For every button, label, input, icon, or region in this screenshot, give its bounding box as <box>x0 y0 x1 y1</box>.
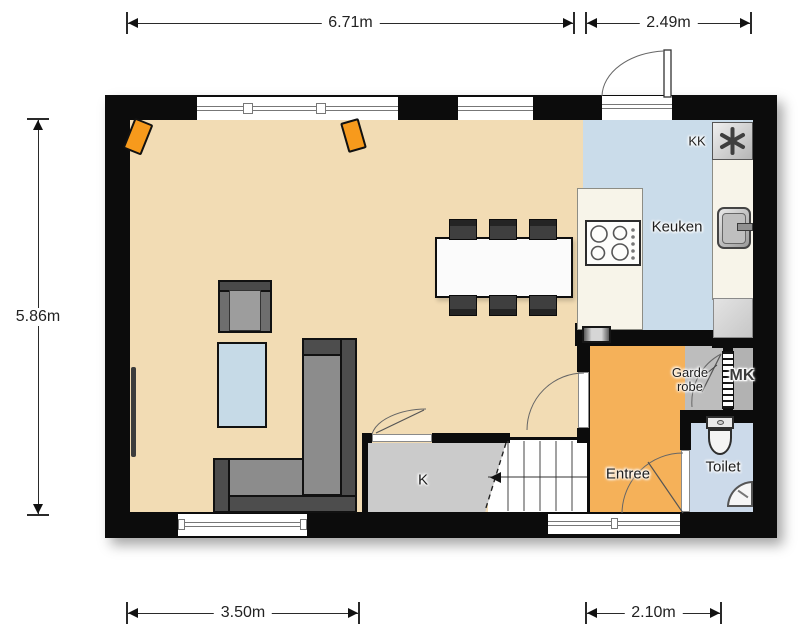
toilet-tank <box>706 416 734 429</box>
dimension-tick <box>750 12 752 34</box>
window-mullion <box>243 103 253 114</box>
boiler-asterisk-icon <box>713 123 752 159</box>
interior-wall-kitchen-south <box>712 340 753 348</box>
arrow-right-icon <box>740 18 750 28</box>
dimension-tick <box>27 514 49 516</box>
tv-unit <box>131 367 136 457</box>
door-living-entree <box>578 372 589 428</box>
arrow-right-icon <box>348 608 358 618</box>
room-label-meterkast: MK <box>730 367 755 385</box>
window-mullion <box>316 103 326 114</box>
dining-chair <box>529 219 557 240</box>
dining-chair <box>489 219 517 240</box>
toilet-flush-button <box>717 420 724 425</box>
under-stairs-closet <box>368 443 506 512</box>
dimension-value: 2.49m <box>639 14 697 32</box>
arrow-up-icon <box>33 120 43 130</box>
dimension-value: 5.86m <box>9 308 67 326</box>
door-threshold <box>602 104 672 109</box>
boiler-unit <box>712 122 753 160</box>
sofa-seat-horizontal <box>228 458 304 497</box>
interior-wall-closet-west <box>362 443 368 512</box>
window-mullion <box>178 519 185 530</box>
interior-wall-closet-north <box>362 433 372 443</box>
dimension-bottom-entree: 2.10m <box>585 602 722 624</box>
room-label-entree: Entree <box>606 466 650 483</box>
dining-chair <box>449 295 477 316</box>
dimension-left-height: 5.86m <box>27 118 49 516</box>
arrow-right-icon <box>710 608 720 618</box>
arrow-left-icon <box>587 608 597 618</box>
arrow-left-icon <box>587 18 597 28</box>
sofa-back-bottom <box>213 495 357 513</box>
dining-table <box>435 237 573 298</box>
stove-burners-icon <box>587 222 639 264</box>
dimension-tick <box>358 602 360 624</box>
stove <box>585 220 641 266</box>
dining-chair <box>529 295 557 316</box>
window-north-small <box>458 97 533 120</box>
dimension-bottom-living: 3.50m <box>126 602 360 624</box>
window-mullion <box>611 518 618 529</box>
arrow-right-icon <box>563 18 573 28</box>
sofa-seat-vertical <box>302 354 342 496</box>
sofa-back-right <box>340 338 357 513</box>
window-glass <box>178 522 307 527</box>
dimension-value: 3.50m <box>214 604 272 622</box>
interior-wall-toilet-west <box>680 410 691 450</box>
room-label-keuken: Keuken <box>652 219 703 236</box>
entree-floor <box>590 346 685 512</box>
faucet-icon <box>737 223 753 231</box>
arrow-left-icon <box>128 608 138 618</box>
door-closet <box>372 434 432 442</box>
stair-top-edge <box>488 437 588 440</box>
door-toilet <box>681 450 690 512</box>
dimension-top-living: 6.71m <box>126 12 575 34</box>
kitchen-appliance <box>713 298 753 338</box>
armchair-seat <box>229 290 261 331</box>
room-label-toilet: Toilet <box>705 459 740 476</box>
arrow-down-icon <box>33 504 43 514</box>
dimension-tick <box>720 602 722 624</box>
front-door-opening <box>602 96 672 120</box>
window-north-living <box>197 97 398 120</box>
front-door-arc <box>602 51 664 96</box>
window-glass <box>197 106 398 111</box>
garderobe-line2: robe <box>677 379 703 394</box>
room-label-garderobe: Garde robe <box>672 366 708 394</box>
window-south-living <box>178 514 307 536</box>
dining-chair <box>489 295 517 316</box>
window-mullion <box>300 519 307 530</box>
basin-faucet-icon <box>738 490 749 499</box>
coffee-table <box>217 342 267 428</box>
floor-plan: 6.71m 2.49m 5.86m 3.50m 2.10m <box>0 0 808 640</box>
window-glass <box>458 106 533 111</box>
front-door-leaf <box>664 50 671 97</box>
garderobe-line1: Garde <box>672 365 708 380</box>
dimension-value: 2.10m <box>624 604 682 622</box>
radiator <box>582 326 611 343</box>
stair-east-edge <box>587 440 590 512</box>
dimension-top-kitchen: 2.49m <box>585 12 752 34</box>
arrow-left-icon <box>128 18 138 28</box>
room-label-closet: K <box>418 472 428 489</box>
dimension-tick <box>573 12 575 34</box>
label-koelkast: KK <box>688 134 705 149</box>
armchair <box>218 280 272 333</box>
dimension-value: 6.71m <box>321 14 379 32</box>
dining-chair <box>449 219 477 240</box>
